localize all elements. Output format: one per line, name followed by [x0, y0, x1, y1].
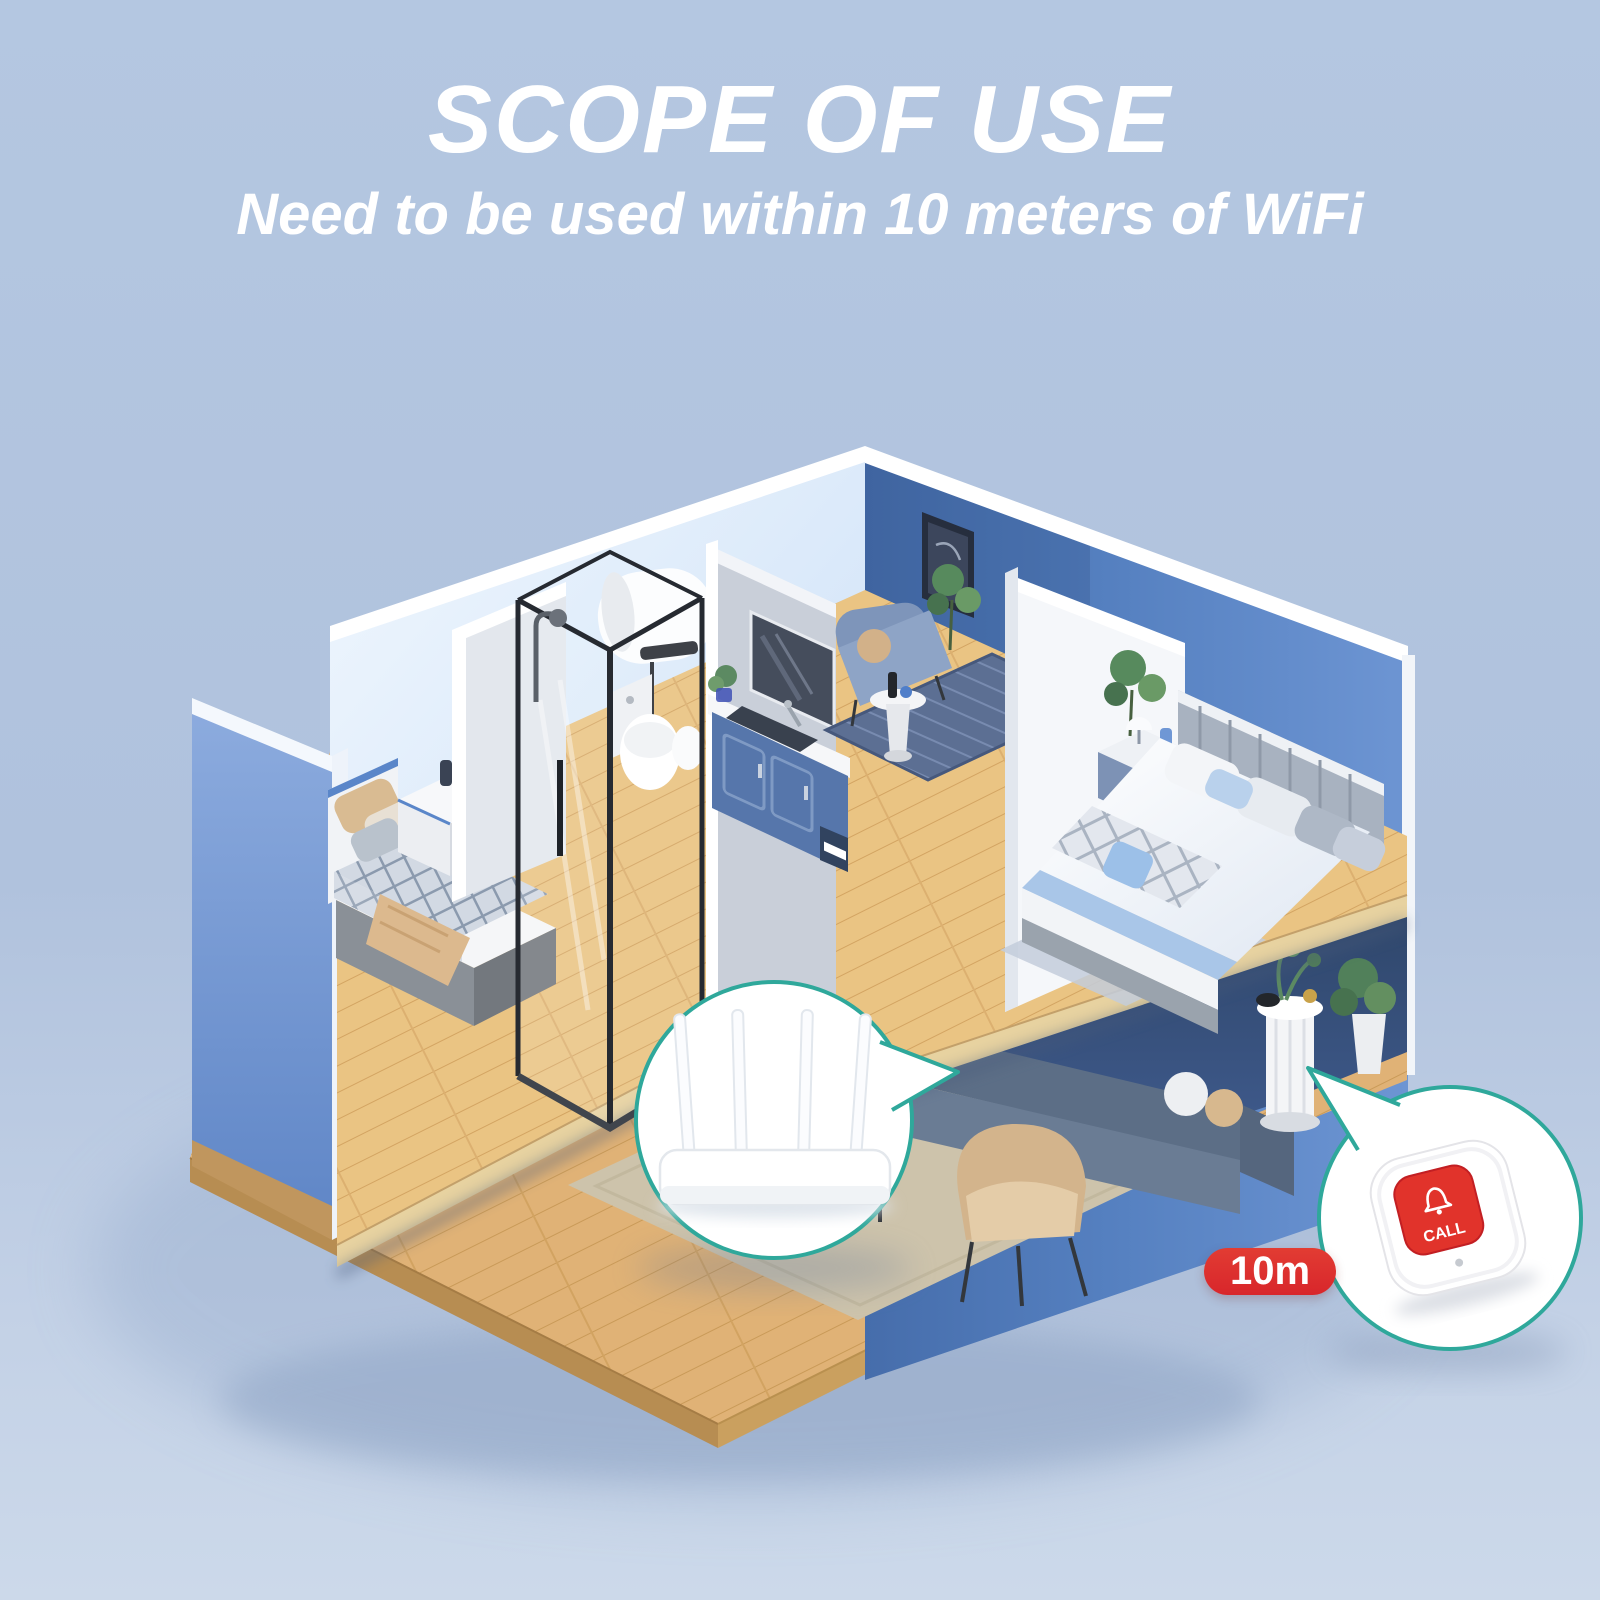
range-badge-label: 10m	[1230, 1249, 1310, 1294]
sofa-pillow-tan	[1205, 1089, 1243, 1127]
page-title: SCOPE OF USE	[0, 70, 1600, 171]
nook-pillow	[857, 629, 891, 663]
toy-figure	[440, 760, 452, 786]
page-subtitle: Need to be used within 10 meters of WiFi	[0, 185, 1600, 246]
header: SCOPE OF USE Need to be used within 10 m…	[0, 70, 1600, 246]
sofa-pillow-white	[1164, 1072, 1208, 1116]
left-exterior-wall	[192, 698, 348, 1240]
range-badge: 10m	[1204, 1248, 1336, 1295]
product-infographic: SCOPE OF USE Need to be used within 10 m…	[0, 0, 1600, 1600]
